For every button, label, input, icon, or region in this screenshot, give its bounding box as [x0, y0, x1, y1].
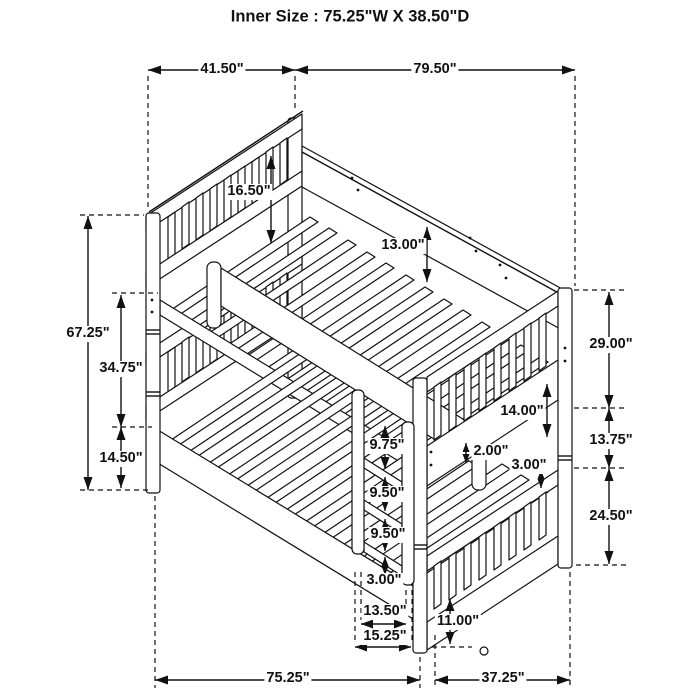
dim-ladder-width-outer: 15.25" — [361, 629, 408, 645]
dim-bottom-length: 75.25" — [264, 671, 311, 687]
dim-rail-thickness: 3.00" — [509, 458, 548, 474]
dim-bottom-depth: 37.25" — [479, 671, 526, 687]
dim-slat-thickness: 2.00" — [471, 444, 510, 460]
post-front-right — [413, 378, 427, 653]
dim-ladder-width-inner: 13.50" — [361, 604, 408, 620]
dim-left-mid: 34.75" — [97, 361, 144, 377]
diagram-title: Inner Size : 75.25"W X 38.50"D — [231, 8, 470, 27]
dim-height-total: 67.25" — [64, 326, 111, 342]
dim-ladder-step-mid: 9.50" — [367, 486, 406, 502]
dimension-diagram: Inner Size : 75.25"W X 38.50"D 41.50" 79… — [0, 0, 700, 700]
dim-headboard-guard: 16.50" — [225, 184, 272, 200]
dim-right-upper: 29.00" — [587, 337, 634, 353]
dim-top-length: 79.50" — [411, 62, 458, 78]
dim-guard-to-rail: 14.00" — [498, 404, 545, 420]
dim-foot-panel: 13.00" — [379, 238, 426, 254]
dim-right-lower: 24.50" — [587, 509, 634, 525]
dim-right-mid: 13.75" — [587, 433, 634, 449]
post-back-right — [558, 288, 572, 568]
dim-top-width: 41.50" — [198, 62, 245, 78]
dim-ladder-step-bottom: 3.00" — [364, 573, 403, 589]
floor-glide — [480, 647, 488, 655]
dim-under-bed-clearance: 11.00" — [435, 614, 481, 630]
post-front-left — [146, 213, 160, 493]
dim-ladder-step-top: 9.75" — [367, 438, 406, 454]
dim-left-lower: 14.50" — [97, 451, 144, 467]
bed-structure — [146, 111, 572, 655]
dim-ladder-step-low: 9.50" — [368, 527, 407, 543]
